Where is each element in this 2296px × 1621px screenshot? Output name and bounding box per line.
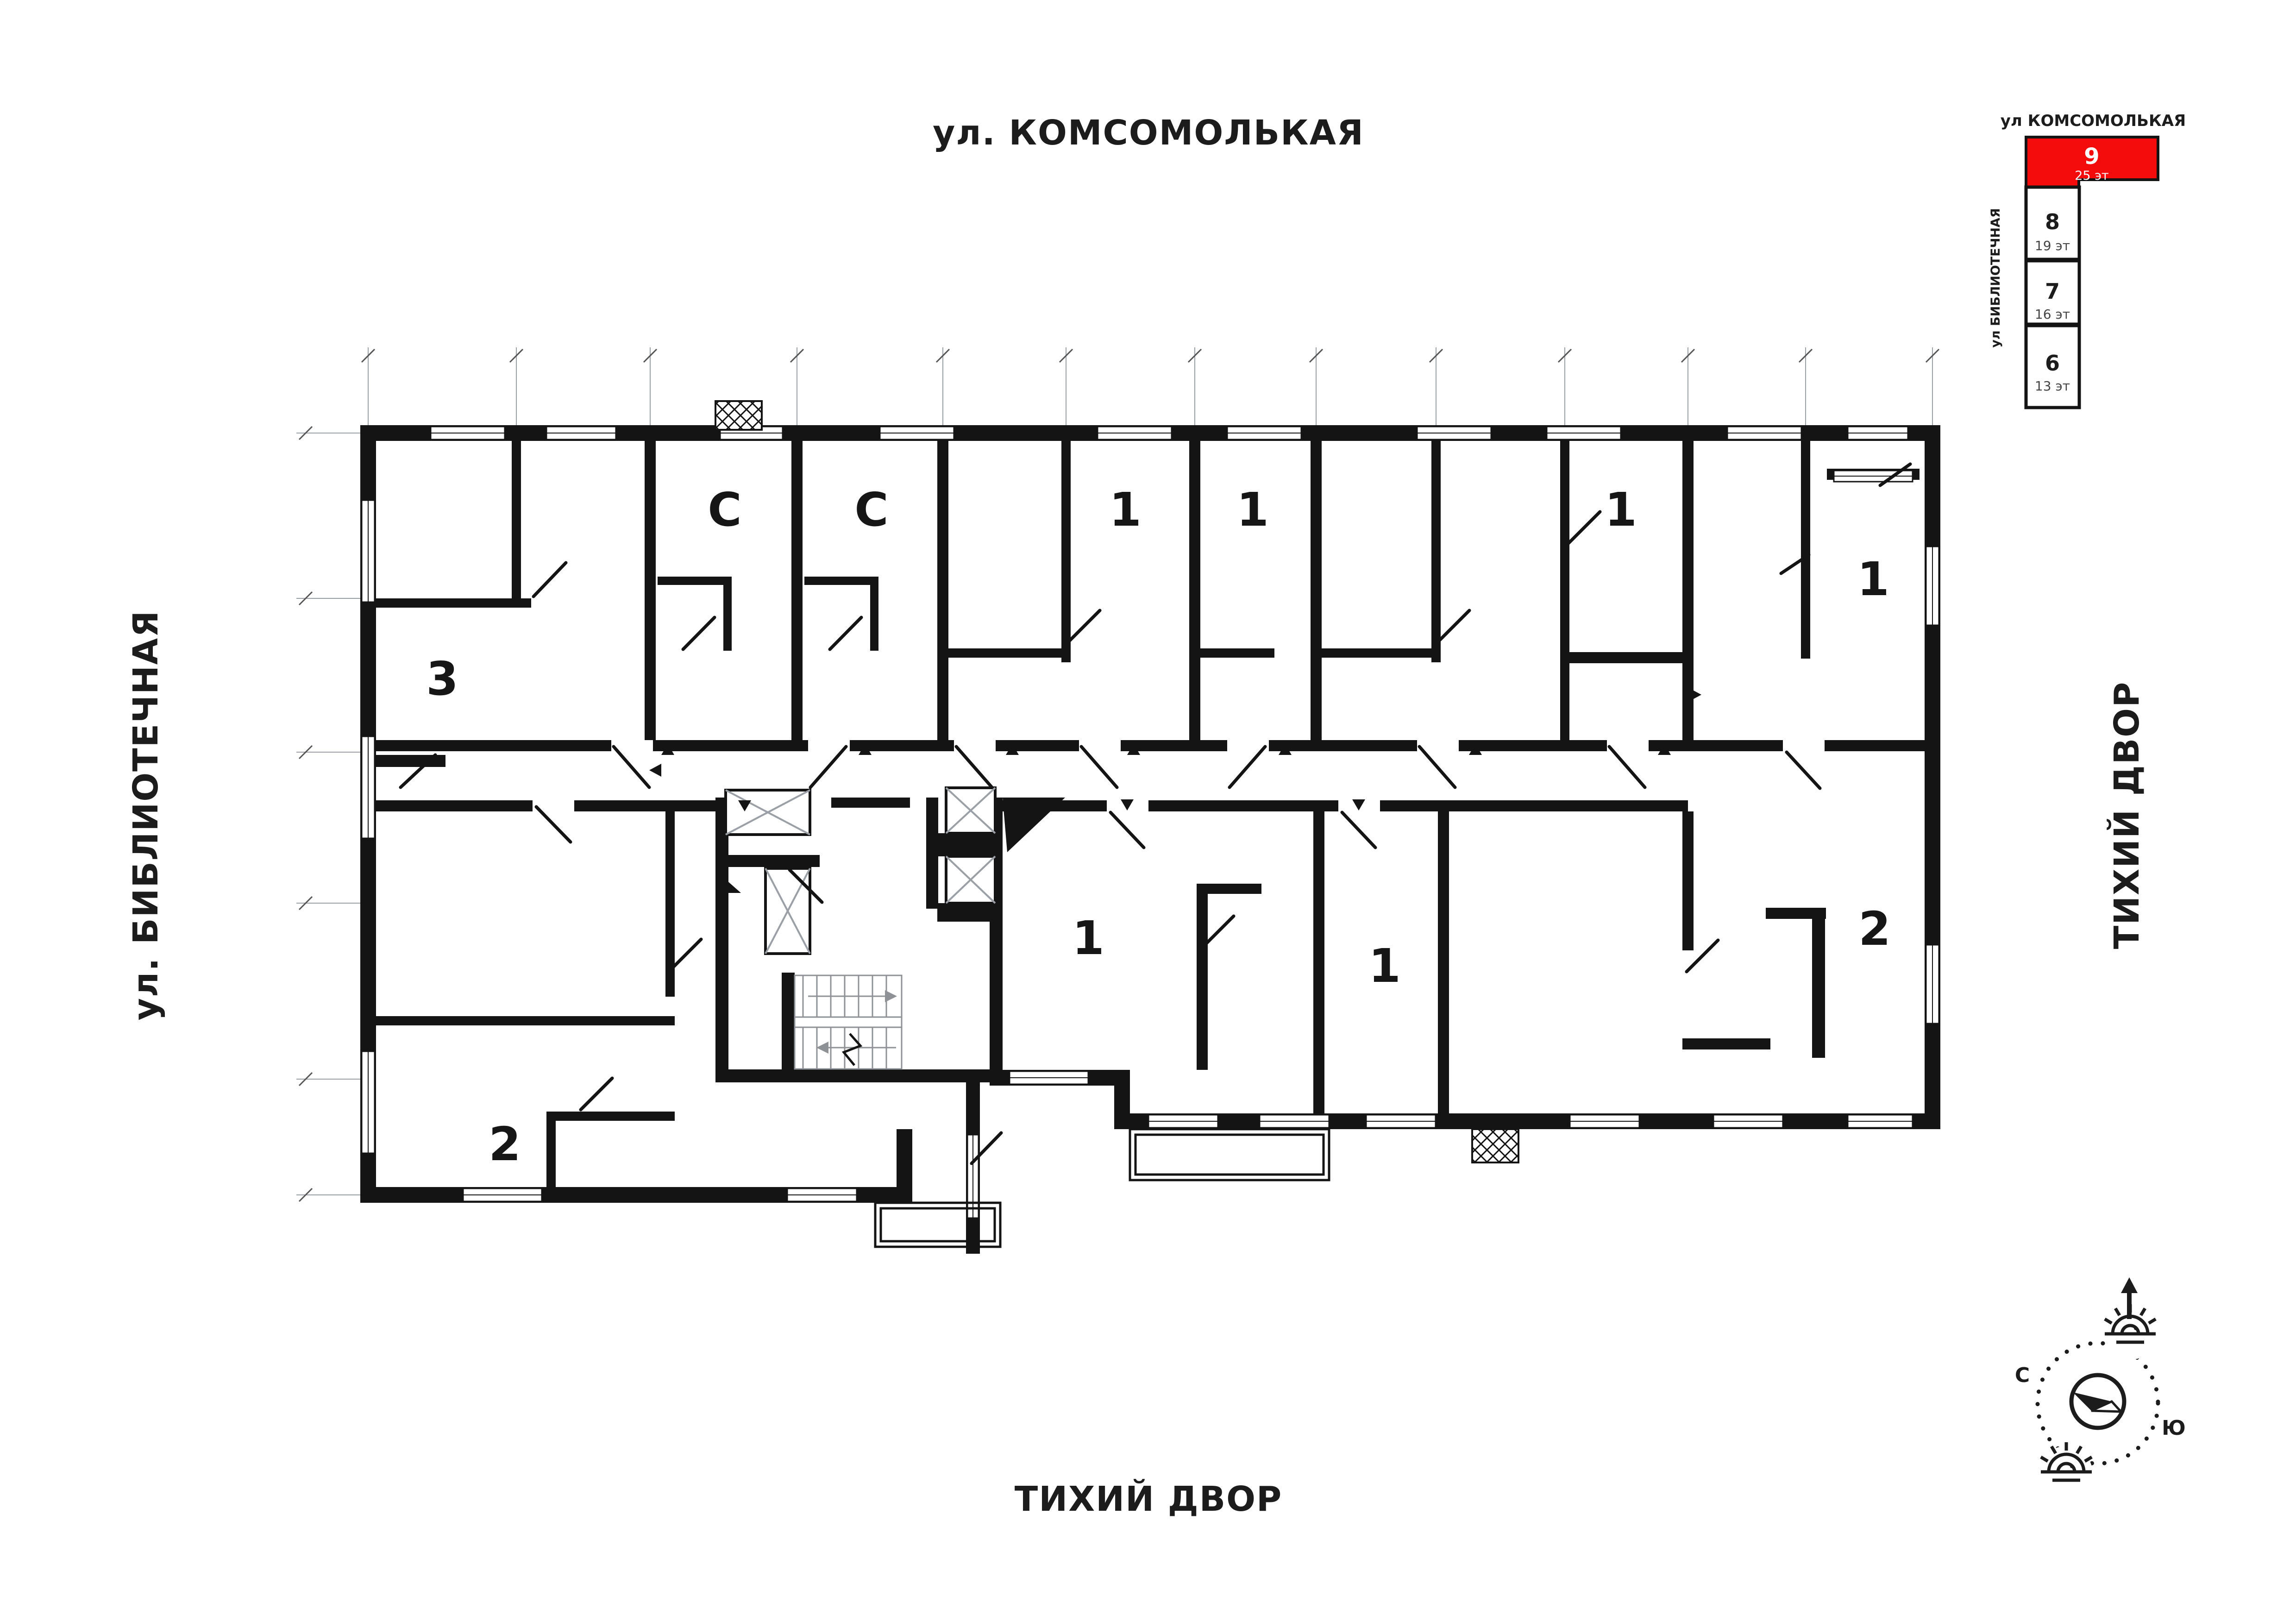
apartment-label-1e[interactable]: 1 (1072, 911, 1104, 965)
window (1227, 427, 1301, 440)
window (1926, 945, 1939, 1024)
apartment-label-1b[interactable]: 1 (1236, 483, 1269, 537)
minimap-block-9-num: 9 (2084, 144, 2099, 170)
grid-rows (296, 427, 360, 1201)
window (1848, 427, 1908, 440)
window (463, 1188, 542, 1201)
window (546, 427, 616, 440)
vent-hatch (715, 401, 762, 430)
window (1417, 427, 1491, 440)
minimap-block-7-floors: 16 эт (2035, 307, 2070, 322)
window (362, 1051, 375, 1153)
compass-needle (2071, 1375, 2124, 1428)
apartment-label-1d[interactable]: 1 (1857, 552, 1889, 606)
apartment-label-2r[interactable]: 2 (1858, 902, 1891, 956)
apartment-label-1f[interactable]: 1 (1368, 939, 1401, 993)
minimap-block-8-floors: 19 эт (2035, 238, 2070, 253)
window (1260, 1115, 1329, 1128)
window (1547, 427, 1621, 440)
balcony (1130, 1129, 1329, 1180)
apartment-label-studio-2[interactable]: С (854, 483, 888, 537)
vent-hatch (1472, 1129, 1518, 1162)
elevator-shaft (946, 788, 995, 833)
apartment-label-1c[interactable]: 1 (1605, 483, 1637, 537)
window (1848, 1115, 1913, 1128)
minimap-header: ул КОМСОМОЛЬКАЯ (2001, 112, 2186, 130)
stairwell (795, 975, 902, 1069)
window (1727, 427, 1801, 440)
window (1926, 547, 1939, 625)
minimap-side-street: ул БИБЛИОТЕЧНАЯ (1989, 208, 2003, 347)
window (1713, 1115, 1783, 1128)
elevator-shaft (765, 868, 810, 954)
compass-north-label: С (2015, 1363, 2030, 1387)
compass-south-label: Ю (2162, 1416, 2186, 1440)
apartment-label-3[interactable]: 3 (426, 652, 458, 706)
window (1366, 1115, 1436, 1128)
entrance-porch (875, 1203, 1000, 1247)
window (1148, 1115, 1218, 1128)
window (431, 427, 505, 440)
elevator-shaft (726, 790, 810, 835)
minimap-block-6[interactable]: 6 13 эт (2026, 326, 2079, 408)
minimap-block-7[interactable]: 7 16 эт (2026, 261, 2079, 324)
minimap-block-6-num: 6 (2045, 351, 2060, 376)
window (967, 1135, 979, 1218)
apartment-label-studio-1[interactable]: С (708, 483, 741, 537)
minimap-block-7-num: 7 (2045, 279, 2060, 304)
minimap-block-9-floors: 25 эт (2075, 169, 2109, 183)
minimap-block-8[interactable]: 8 19 эт (2026, 187, 2079, 259)
interior-walls (376, 441, 1925, 1187)
grid-columns (362, 347, 1939, 425)
window (1570, 1115, 1639, 1128)
window (880, 427, 954, 440)
floorplan-page: 3 С С 1 1 1 1 2 1 1 2 ул. КОМСОМОЛЬКАЯ у… (0, 0, 2296, 1621)
window (362, 736, 375, 838)
floorplan-svg: 3 С С 1 1 1 1 2 1 1 2 ул. КОМСОМОЛЬКАЯ у… (0, 0, 2296, 1621)
window (1098, 427, 1172, 440)
minimap-block-9-active[interactable]: 9 25 эт (2026, 137, 2158, 187)
elevators (726, 788, 995, 954)
window (362, 500, 375, 602)
building-minimap: ул КОМСОМОЛЬКАЯ ул БИБЛИОТЕЧНАЯ 9 25 эт … (1989, 112, 2186, 408)
street-label-left: ул. БИБЛИОТЕЧНАЯ (126, 610, 166, 1020)
elevator-shaft (946, 856, 995, 903)
street-label-right: ТИХИЙ ДВОР (2106, 681, 2147, 949)
street-label-top: ул. КОМСОМОЛЬКАЯ (933, 113, 1364, 153)
street-label-bottom: ТИХИЙ ДВОР (1015, 1478, 1283, 1519)
window (787, 1188, 857, 1201)
apartment-label-1a[interactable]: 1 (1109, 483, 1142, 537)
apartment-label-2l[interactable]: 2 (489, 1117, 521, 1171)
window (1010, 1071, 1088, 1084)
street-labels: ул. КОМСОМОЛЬКАЯ ул. БИБЛИОТЕЧНАЯ ТИХИЙ … (126, 113, 2147, 1519)
compass: С Ю (2015, 1277, 2186, 1498)
minimap-block-6-floors: 13 эт (2035, 378, 2070, 394)
windows (362, 427, 1939, 1218)
minimap-block-8-num: 8 (2045, 209, 2060, 234)
